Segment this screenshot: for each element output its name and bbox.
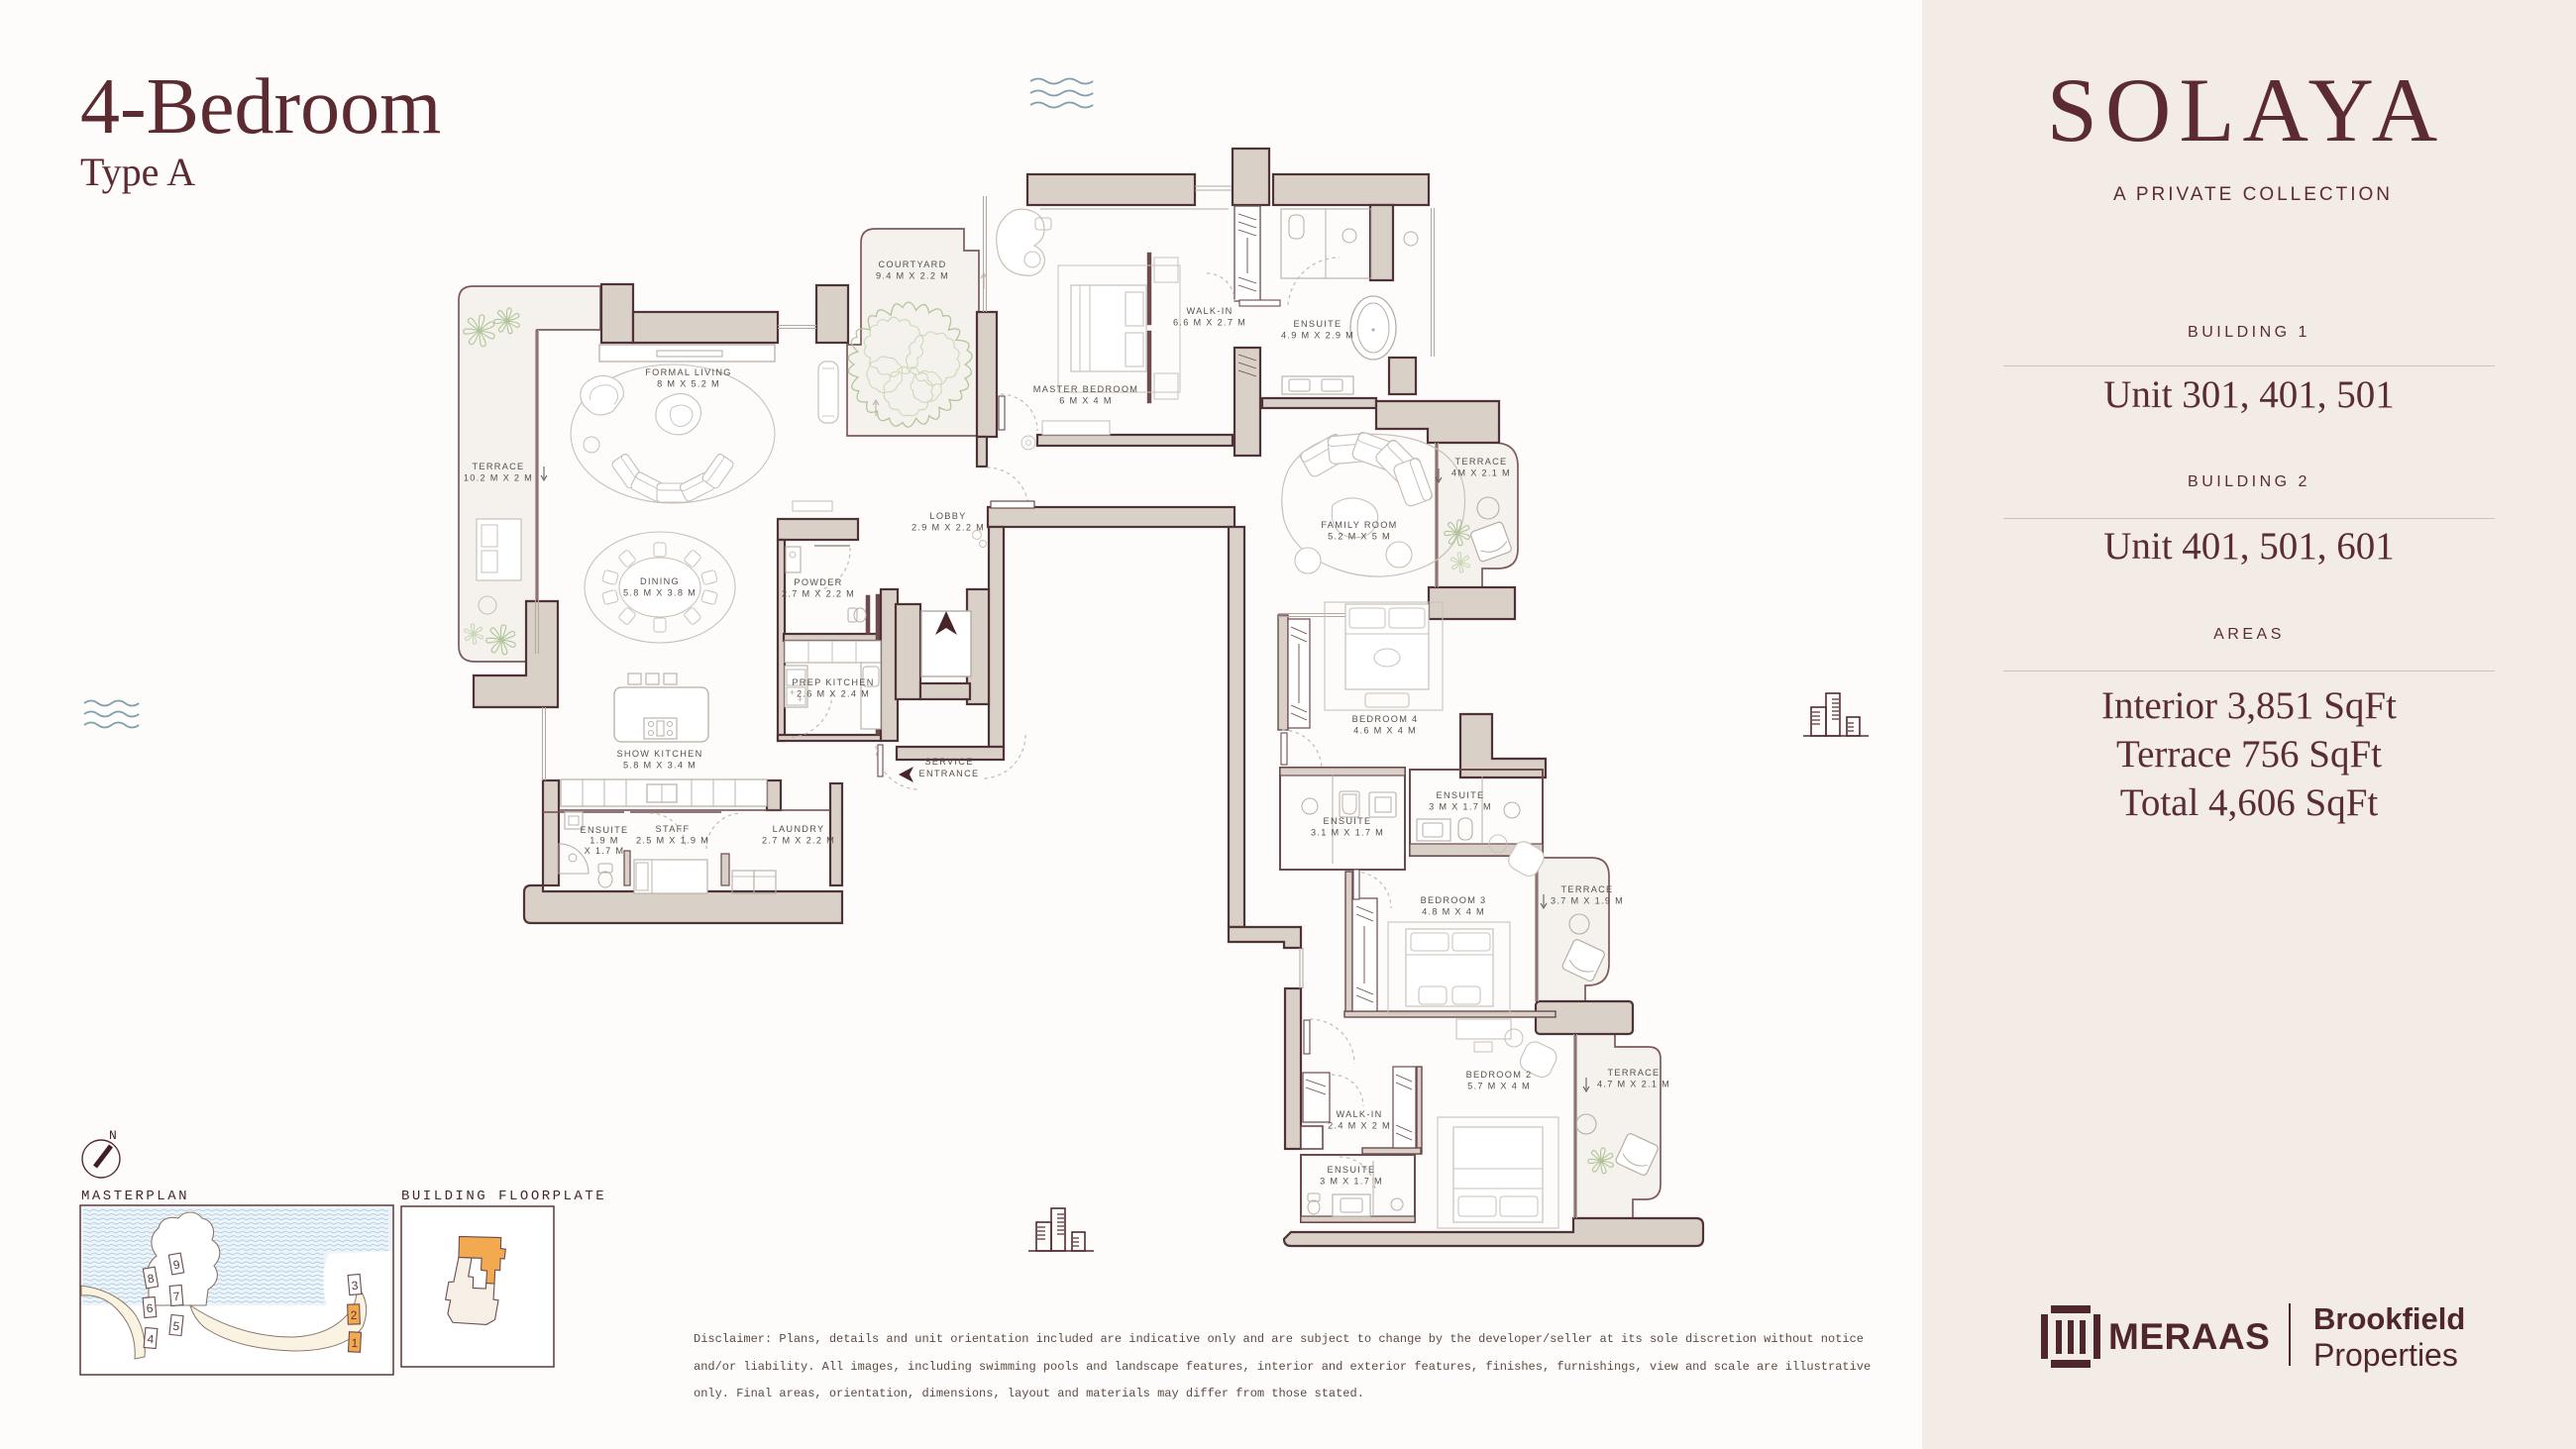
svg-text:MASTER BEDROOM: MASTER BEDROOM [1033,384,1139,394]
svg-text:9.4 M X 2.2 M: 9.4 M X 2.2 M [876,271,949,281]
svg-text:5.2 M X 5 M: 5.2 M X 5 M [1328,532,1391,542]
svg-text:10.2 M X 2 M: 10.2 M X 2 M [464,473,533,483]
svg-text:BUILDING FLOORPLATE: BUILDING FLOORPLATE [401,1189,606,1204]
svg-text:STAFF: STAFF [656,824,691,834]
svg-text:1.9 M: 1.9 M [590,836,618,846]
svg-text:5.8 M X 3.4 M: 5.8 M X 3.4 M [623,761,697,771]
svg-text:TERRACE: TERRACE [1454,457,1507,466]
svg-text:3 M X 1.7 M: 3 M X 1.7 M [1320,1177,1383,1187]
svg-text:3.1 M X 1.7 M: 3.1 M X 1.7 M [1311,828,1384,838]
svg-text:5.8 M X 3.8 M: 5.8 M X 3.8 M [623,588,697,598]
svg-text:LOBBY: LOBBY [929,511,966,521]
svg-text:BEDROOM 2: BEDROOM 2 [1466,1070,1533,1080]
svg-text:3 M X 1.7 M: 3 M X 1.7 M [1429,802,1492,812]
svg-text:4.6 M X 4 M: 4.6 M X 4 M [1353,726,1417,736]
svg-text:COURTYARD: COURTYARD [878,259,946,269]
svg-text:POWDER: POWDER [794,577,842,587]
svg-text:ENSUITE: ENSUITE [581,825,629,835]
svg-text:ENTRANCE: ENTRANCE [919,769,980,778]
svg-text:LAUNDRY: LAUNDRY [773,824,825,834]
svg-text:4.7 M X 2.1 M: 4.7 M X 2.1 M [1597,1080,1670,1089]
svg-text:ENSUITE: ENSUITE [1328,1165,1376,1175]
svg-text:6.6 M X 2.7 M: 6.6 M X 2.7 M [1173,318,1246,328]
svg-text:TERRACE: TERRACE [472,462,524,471]
svg-text:SERVICE: SERVICE [924,757,973,767]
svg-text:2.7 M X 2.2 M: 2.7 M X 2.2 M [782,589,855,599]
svg-text:8 M X 5.2 M: 8 M X 5.2 M [657,379,720,389]
svg-text:ENSUITE: ENSUITE [1437,790,1485,800]
svg-text:2: 2 [350,1308,357,1322]
svg-text:PREP KITCHEN: PREP KITCHEN [792,677,874,687]
svg-text:SHOW KITCHEN: SHOW KITCHEN [616,749,702,759]
svg-text:MASTERPLAN: MASTERPLAN [81,1189,189,1204]
svg-text:1: 1 [351,1336,359,1350]
svg-text:WALK-IN: WALK-IN [1336,1109,1382,1119]
svg-text:ENSUITE: ENSUITE [1294,319,1342,329]
svg-text:4.9 M X 2.9 M: 4.9 M X 2.9 M [1281,331,1354,341]
svg-text:N: N [109,1128,117,1143]
svg-text:3.7 M X 1.9 M: 3.7 M X 1.9 M [1551,896,1624,906]
svg-text:TERRACE: TERRACE [1607,1068,1660,1078]
svg-text:4.8 M X 4 M: 4.8 M X 4 M [1422,907,1485,917]
svg-text:2.6 M X 2.4 M: 2.6 M X 2.4 M [797,689,870,699]
svg-text:TERRACE: TERRACE [1560,884,1613,894]
svg-text:5.7 M X 4 M: 5.7 M X 4 M [1467,1082,1531,1091]
svg-text:WALK-IN: WALK-IN [1186,306,1233,316]
svg-text:DINING: DINING [640,576,680,586]
svg-text:2.4 M X 2 M: 2.4 M X 2 M [1328,1121,1391,1131]
svg-text:X 1.7 M: X 1.7 M [585,846,625,856]
svg-text:2.5 M X 1.9 M: 2.5 M X 1.9 M [636,836,709,846]
svg-text:4M X 2.1 M: 4M X 2.1 M [1451,468,1511,478]
svg-text:BEDROOM 4: BEDROOM 4 [1352,714,1419,724]
svg-text:FORMAL LIVING: FORMAL LIVING [645,367,732,377]
svg-text:FAMILY ROOM: FAMILY ROOM [1321,520,1397,530]
svg-text:ENSUITE: ENSUITE [1324,816,1372,826]
svg-text:2.7 M X 2.2 M: 2.7 M X 2.2 M [762,836,835,846]
svg-text:6 M X 4 M: 6 M X 4 M [1059,396,1113,406]
svg-text:2.9 M X 2.2 M: 2.9 M X 2.2 M [912,523,985,533]
svg-text:BEDROOM 3: BEDROOM 3 [1421,895,1487,905]
